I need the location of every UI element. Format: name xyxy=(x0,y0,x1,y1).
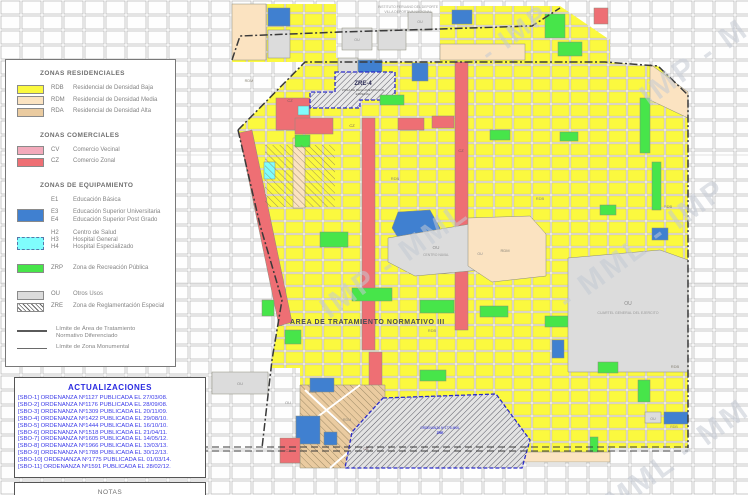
map-label: OU xyxy=(433,245,440,250)
legend-item-cz: CZComercio Zonal xyxy=(6,157,175,169)
zrp-block xyxy=(600,205,616,215)
map-label: RDB xyxy=(670,425,678,429)
legend-code: E4 xyxy=(51,217,58,223)
legend-label: Educación Básica xyxy=(73,197,121,203)
legend-item-h2: H2Centro de Salud xyxy=(6,229,175,236)
zrp-block xyxy=(320,232,348,247)
rdb-swatch xyxy=(17,85,44,94)
limit-label: Límite de Área de TratamientoNormativo D… xyxy=(56,326,135,340)
cz-block xyxy=(594,8,608,24)
ou-videna xyxy=(378,30,406,50)
zrp-swatch xyxy=(17,264,44,273)
map-label: OU xyxy=(417,20,423,24)
zrp-block xyxy=(420,370,446,381)
zrp-block xyxy=(560,132,578,141)
cv-swatch xyxy=(17,146,44,155)
zrp-block xyxy=(262,300,274,316)
limit-label: Límite de Zona Monumental xyxy=(56,344,129,351)
legend-label: Residencial de Densidad Alta xyxy=(73,108,151,114)
map-label: RDB xyxy=(391,176,400,181)
legend-item-h3: H3Hospital General xyxy=(6,236,175,243)
legend-label: Educación Superior Universitaria xyxy=(73,209,160,215)
eq-block xyxy=(452,10,472,24)
map-label: VILLA DEPORTIVA NACIONAL xyxy=(384,10,431,14)
eq-block xyxy=(664,412,688,424)
map-label: RDB xyxy=(664,204,673,209)
legend-section-title: ZONAS DE EQUIPAMIENTO xyxy=(40,182,175,189)
legend-code: ZRP xyxy=(51,265,63,271)
eq-block xyxy=(268,8,290,26)
legend-panel: ZONAS RESIDENCIALESRDBResidencial de Den… xyxy=(5,59,176,367)
zrp-block xyxy=(545,316,569,327)
legend-code: H2 xyxy=(51,230,59,236)
cz-block xyxy=(432,116,454,128)
map-label: CUARTEL GENERAL DEL EJERCITO xyxy=(597,311,658,315)
map-label: RDM xyxy=(500,248,509,253)
legend-label: Educación Superior Post Grado xyxy=(73,217,157,223)
zrp-block xyxy=(490,130,510,140)
map-label: RDM xyxy=(245,79,254,83)
legend-label: Hospital Especializado xyxy=(73,244,133,250)
map-label: RDM xyxy=(343,418,351,422)
map-label: RDB xyxy=(428,328,437,333)
map-label: RDB xyxy=(536,196,545,201)
map-label: CZ xyxy=(363,446,369,451)
eq-block xyxy=(412,63,428,81)
legend-label: Zona de Recreación Pública xyxy=(73,265,148,271)
map-label: ZRE-4 xyxy=(354,81,372,87)
rda-swatch xyxy=(17,108,44,117)
legend-code: ZRE xyxy=(51,303,63,309)
cz-swatch xyxy=(17,158,44,167)
map-label: CENTRO NAVAL xyxy=(423,253,449,257)
actualizacion-entry: [SBO-3] ORDENANZA Nº1309 PUBLICADA EL 20… xyxy=(18,409,205,416)
legend-item-h4: H4Hospital Especializado xyxy=(6,243,175,250)
actualizacion-entry: [SBO-1] ORDENANZA Nº1127 PUBLICADA EL 27… xyxy=(18,395,205,402)
map-label: AREA DE TRATAMIENTO NORMATIVO III xyxy=(290,319,445,326)
legend-section-title: ZONAS RESIDENCIALES xyxy=(40,70,175,77)
zoning-map-sheet: IMP - MML- MML - IMPIMP - MP - MML - MM-… xyxy=(0,0,748,495)
notas-title: NOTAS xyxy=(15,489,205,495)
legend-code: RDB xyxy=(51,85,64,91)
map-label: CZ xyxy=(458,148,464,153)
legend-code: H4 xyxy=(51,244,59,250)
map-label: CZ xyxy=(285,448,291,453)
map-label: OU xyxy=(624,301,632,307)
actualizacion-entry: [SBO-11] ORDENANZA Nº1591 PUBLICADA EL 2… xyxy=(18,464,205,471)
zrp-block xyxy=(420,300,454,313)
legend-item-rdm: RDMResidencial de Densidad Media xyxy=(6,96,175,108)
map-label: CZ xyxy=(287,98,293,103)
actualizaciones-panel: ACTUALIZACIONES [SBO-1] ORDENANZA Nº1127… xyxy=(14,377,206,478)
actualizaciones-entries: [SBO-1] ORDENANZA Nº1127 PUBLICADA EL 27… xyxy=(18,395,205,471)
legend-limit-row: Límite de Área de TratamientoNormativo D… xyxy=(6,326,175,344)
ou-swatch xyxy=(17,291,44,300)
map-label: RDM xyxy=(309,390,317,394)
map-label: OU xyxy=(354,38,360,42)
legend-code: E3 xyxy=(51,209,58,215)
zrp-block xyxy=(598,362,618,373)
legend-item-rdb: RDBResidencial de Densidad Baja xyxy=(6,84,175,96)
legend-code: H3 xyxy=(51,237,59,243)
actualizaciones-title: ACTUALIZACIONES xyxy=(15,383,205,392)
legend-label: Comercio Vecinal xyxy=(73,147,120,153)
map-label: INSTITUTO PERUANO DEL DEPORTE xyxy=(378,5,439,9)
zrp-block xyxy=(380,95,404,105)
limit-line-sample xyxy=(17,348,47,349)
notas-panel: NOTAS xyxy=(14,482,206,495)
legend-label: Centro de Salud xyxy=(73,230,116,236)
legend-limit-row: Límite de Zona Monumental xyxy=(6,344,175,355)
map-label: RDB xyxy=(671,364,680,369)
actualizacion-entry: [SBO-5] ORDENANZA Nº1444 PUBLICADA EL 16… xyxy=(18,423,205,430)
limit-line-sample xyxy=(17,330,47,332)
map-label: CZ xyxy=(349,123,355,128)
legend-item-cv: CVComercio Vecinal xyxy=(6,146,175,158)
actualizacion-entry: [SBO-4] ORDENANZA Nº1422 PUBLICADA EL 29… xyxy=(18,416,205,423)
legend-label: Otros Usos xyxy=(73,291,103,297)
zrp-block xyxy=(480,306,508,317)
legend-item-e3: E3Educación Superior Universitaria xyxy=(6,208,175,215)
legend-item-zre: ZREZona de Reglamentación Especial xyxy=(6,302,175,309)
cz-block xyxy=(295,118,333,134)
map-label: ORDENANZA Nº1775-MML xyxy=(420,426,460,430)
rdm-block xyxy=(232,4,266,60)
legend-code: OU xyxy=(51,291,60,297)
map-label: ZRE xyxy=(437,431,445,435)
zrp-block xyxy=(285,330,301,344)
rdm-swatch xyxy=(17,96,44,105)
eq-block xyxy=(324,432,337,445)
zre-swatch xyxy=(17,303,44,312)
map-label: OU xyxy=(650,417,656,421)
legend-label: Comercio Zonal xyxy=(73,158,115,164)
legend-item-rda: RDAResidencial de Densidad Alta xyxy=(6,107,175,119)
legend-label: Residencial de Densidad Media xyxy=(73,97,157,103)
map-label: OU xyxy=(237,381,243,386)
salud-block xyxy=(298,106,309,115)
legend-label: Residencial de Densidad Baja xyxy=(73,85,153,91)
cz-corridor-aviacion xyxy=(455,62,468,330)
map-label: OU xyxy=(477,252,483,256)
map-label: OU xyxy=(285,400,291,405)
legend-code: CV xyxy=(51,147,59,153)
legend-section-title: ZONAS COMERCIALES xyxy=(40,132,175,139)
legend-item-zrp: ZRPZona de Recreación Pública xyxy=(6,264,175,271)
zrp-block xyxy=(558,42,582,56)
legend-code: RDM xyxy=(51,97,65,103)
zrp-block xyxy=(638,380,650,402)
eq-block xyxy=(552,340,564,358)
legend-item-e1: E1Educación Básica xyxy=(6,196,175,203)
legend-label: Hospital General xyxy=(73,237,118,243)
legend-code: E1 xyxy=(51,197,58,203)
map-label: ESPECIAL xyxy=(356,92,371,96)
zre-overlay xyxy=(265,145,335,207)
actualizacion-entry: [SBO-2] ORDENANZA Nº1176 PUBLICADA EL 28… xyxy=(18,402,205,409)
legend-limits: Límite de Área de TratamientoNormativo D… xyxy=(6,326,175,355)
legend-item-e4: E4Educación Superior Post Grado xyxy=(6,216,175,223)
cz-block xyxy=(398,118,424,130)
legend-sections: ZONAS RESIDENCIALESRDBResidencial de Den… xyxy=(6,70,175,310)
cz-corridor-center xyxy=(362,118,375,350)
zrp-strip xyxy=(652,162,661,210)
zrp-block xyxy=(590,437,598,452)
legend-label: Zona de Reglamentación Especial xyxy=(73,303,164,309)
legend-code: CZ xyxy=(51,158,59,164)
legend-code: RDA xyxy=(51,108,64,114)
legend-item-ou: OUOtros Usos xyxy=(6,290,175,297)
